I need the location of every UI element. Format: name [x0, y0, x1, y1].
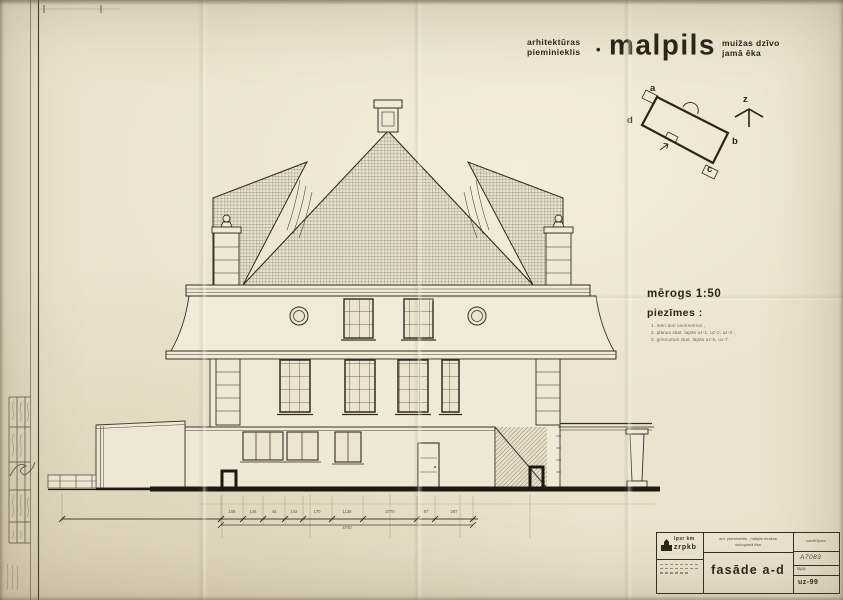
illegible-microtext-line: [660, 572, 688, 574]
sheet-number: uz-99: [798, 579, 818, 587]
doc-number: A7083: [800, 554, 821, 561]
dim-segment: 170: [306, 510, 328, 515]
object-name-line1: arh. piemineklis - mālpils muižas: [704, 537, 792, 541]
drawing-title: fasāde a-d: [703, 564, 793, 578]
plan-label-c: c: [707, 165, 712, 175]
header-bullet: •: [596, 43, 601, 57]
zrpkb-logo-icon: [661, 539, 672, 551]
header-pretitle-1: arhitektūras: [527, 38, 580, 47]
title-block: lpsr km zrpkb arh. piemineklis - mālpils…: [656, 532, 840, 594]
title-block-divider: [703, 533, 704, 593]
dim-segment: 146: [242, 510, 264, 515]
dim-segment: 97: [415, 510, 437, 515]
org-code-line1: lpsr km: [674, 537, 695, 542]
text-layer: arhitektūras pieminieklis • malpils muiž…: [0, 0, 843, 600]
title-block-divider: [793, 575, 839, 576]
header-title: malpils: [609, 29, 716, 60]
header-subtitle-1: muižas dzīvo: [722, 39, 780, 48]
header-subtitle-2: jamā ēka: [722, 49, 761, 58]
doc-type: uzmērījums: [794, 539, 838, 543]
sheet-label: lapa: [797, 567, 806, 572]
org-code-line2: zrpkb: [674, 544, 697, 552]
illegible-microtext-line: [660, 568, 700, 570]
dim-segment: 142: [283, 510, 305, 515]
title-block-divider: [657, 559, 703, 560]
dim-segment: 44: [263, 510, 285, 515]
note-line: 3. griezumus skat. lapās uz-6, uz-7 .: [651, 338, 731, 343]
scale-label: mērogs 1:50: [647, 288, 721, 300]
illegible-microtext-line: [660, 564, 700, 566]
dim-segment: 108: [221, 510, 243, 515]
illegible-microtext: [657, 561, 703, 574]
dim-segment: 1138: [336, 510, 358, 515]
dim-segment: 2770: [379, 510, 401, 515]
dim-total: 4740: [336, 526, 358, 531]
title-block-divider: [793, 551, 839, 552]
drawing-sheet: arhitektūras pieminieklis • malpils muiž…: [0, 0, 843, 600]
note-line: 1. mēri doti centimetros ,: [651, 324, 705, 329]
object-name-line2: dzīvojamā ēka: [704, 543, 792, 547]
plan-label-d: d: [627, 116, 633, 126]
dim-segment: 287: [443, 510, 465, 515]
notes-heading: piezīmes :: [647, 308, 703, 319]
north-label: z: [743, 95, 748, 105]
plan-label-a: a: [650, 84, 655, 94]
title-block-divider: [703, 552, 793, 553]
header-pretitle-2: pieminieklis: [527, 48, 580, 57]
plan-label-b: b: [732, 137, 738, 147]
note-line: 2. plānus skat. lapās uz-1, uz-2, uz-3 ,: [651, 331, 735, 336]
